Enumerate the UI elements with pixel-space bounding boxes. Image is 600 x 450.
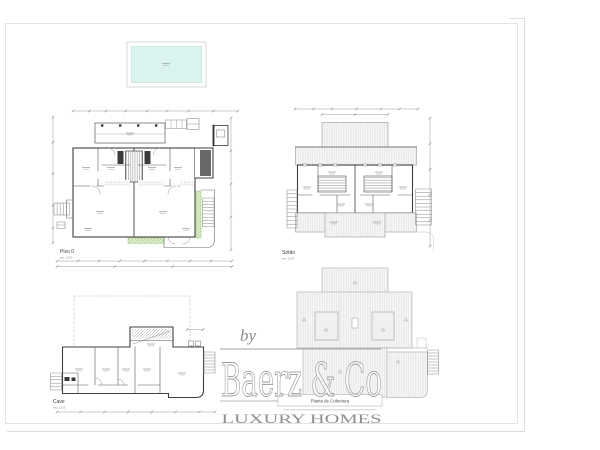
garden-annex <box>213 126 228 146</box>
central-stair <box>126 151 143 182</box>
pool-water <box>132 47 202 83</box>
planter-right <box>196 191 201 238</box>
roof-skylight-left <box>315 312 338 340</box>
architectural-plan-svg: Piso 0 esc: 1/100 Sótão esc: 1/100 Cave <box>0 0 600 450</box>
stair-void-right <box>364 176 392 192</box>
pool-plan <box>127 42 206 87</box>
roof-skylight-right <box>372 312 394 340</box>
planter-bottom <box>128 238 164 243</box>
sotao-title: Sótão <box>282 250 295 256</box>
watermark-by-text: by <box>240 326 257 345</box>
wardrobe-block <box>200 150 211 176</box>
cave-title: Cave <box>53 399 65 405</box>
stair-void-left <box>318 176 346 192</box>
piso0-scale-note: esc: 1/100 <box>60 256 73 260</box>
roof-dormer <box>322 123 388 148</box>
drawing-sheet-canvas: Piso 0 esc: 1/100 Sótão esc: 1/100 Cave <box>0 0 600 450</box>
cave-scale-note: esc: 1/100 <box>53 406 66 410</box>
watermark-brand-text: Baerz & Co <box>221 353 382 407</box>
watermark-tagline-text: LUXURY HOMES <box>222 411 382 426</box>
piso0-title: Piso 0 <box>60 249 74 255</box>
roof-band-top <box>296 147 417 165</box>
basement-stair <box>132 329 171 339</box>
sotao-scale-note: esc: 1/100 <box>282 257 295 261</box>
